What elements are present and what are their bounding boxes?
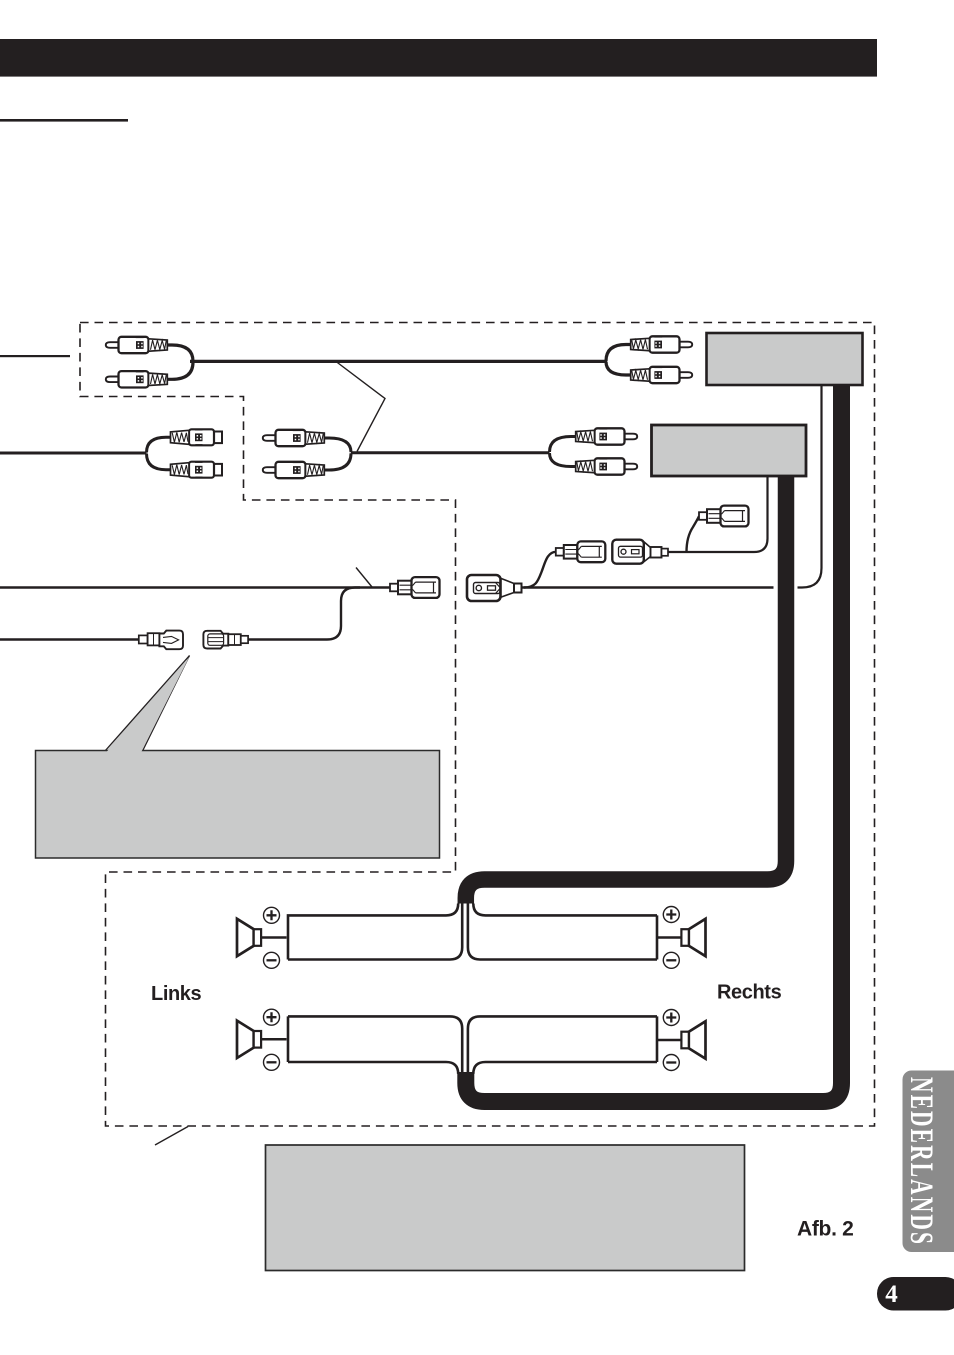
svg-text:Afb. 2: Afb. 2 [797,1218,854,1241]
svg-text:Rechts: Rechts [717,982,782,1004]
svg-text:4: 4 [885,1281,898,1308]
svg-text:Links: Links [151,983,202,1005]
svg-text:NEDERLANDS: NEDERLANDS [904,1077,939,1246]
